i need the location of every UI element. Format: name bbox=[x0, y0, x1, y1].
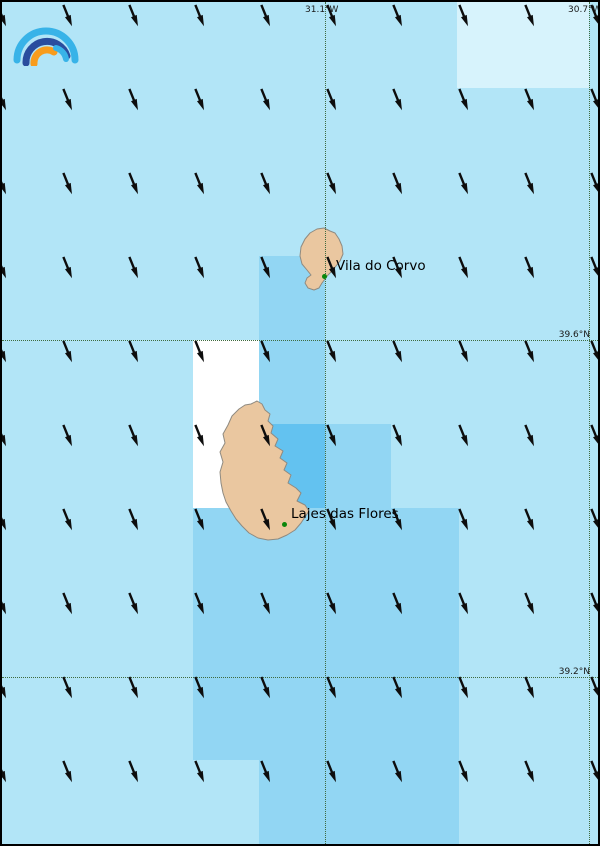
wind-arrow bbox=[127, 88, 141, 112]
graticule-label: 39.2°N bbox=[559, 667, 590, 677]
wind-arrow bbox=[193, 4, 207, 28]
wind-arrow bbox=[61, 340, 75, 364]
wind-arrow bbox=[193, 760, 207, 784]
wind-arrow bbox=[61, 676, 75, 700]
wind-arrow bbox=[127, 256, 141, 280]
wind-arrow bbox=[2, 676, 9, 700]
wind-arrow bbox=[589, 760, 600, 784]
wind-arrow bbox=[193, 256, 207, 280]
wind-arrow bbox=[259, 88, 273, 112]
wind-arrow bbox=[127, 424, 141, 448]
wind-arrow bbox=[127, 592, 141, 616]
wind-arrow bbox=[193, 172, 207, 196]
wind-arrow bbox=[523, 508, 537, 532]
wind-arrow bbox=[2, 760, 9, 784]
wind-arrow bbox=[523, 172, 537, 196]
wind-arrow bbox=[391, 4, 405, 28]
wind-arrow bbox=[2, 592, 9, 616]
graticule-label: 31.1°W bbox=[305, 5, 338, 15]
map-canvas[interactable]: Vila do CorvoLajes das Flores 31.1°W30.7… bbox=[0, 0, 600, 846]
rainbow-arcs-logo[interactable] bbox=[10, 14, 86, 66]
wind-arrow bbox=[61, 172, 75, 196]
wind-arrow bbox=[391, 172, 405, 196]
wind-arrow bbox=[589, 676, 600, 700]
wind-arrow bbox=[259, 4, 273, 28]
wind-arrow bbox=[2, 4, 9, 28]
wind-arrow bbox=[523, 256, 537, 280]
wind-arrow bbox=[127, 4, 141, 28]
wind-arrow bbox=[589, 592, 600, 616]
wind-arrow bbox=[391, 340, 405, 364]
wind-arrow bbox=[589, 88, 600, 112]
wind-arrow bbox=[523, 424, 537, 448]
graticule-line-horizontal bbox=[2, 340, 598, 341]
wind-arrow bbox=[523, 88, 537, 112]
wind-arrow bbox=[2, 340, 9, 364]
wind-arrow bbox=[457, 88, 471, 112]
wind-arrow bbox=[127, 760, 141, 784]
grid-cell bbox=[325, 424, 391, 508]
wind-arrow bbox=[2, 508, 9, 532]
wind-arrow bbox=[589, 172, 600, 196]
graticule-line-horizontal bbox=[2, 677, 598, 678]
city-label: Lajes das Flores bbox=[291, 507, 399, 522]
wind-arrow bbox=[2, 88, 9, 112]
city-label: Vila do Corvo bbox=[336, 259, 426, 274]
wind-arrow bbox=[325, 340, 339, 364]
graticule-label: 39.6°N bbox=[559, 330, 590, 340]
wind-arrow bbox=[589, 340, 600, 364]
grid-cell bbox=[193, 340, 259, 508]
wind-arrow bbox=[2, 256, 9, 280]
wind-arrow bbox=[259, 172, 273, 196]
wind-arrow bbox=[127, 172, 141, 196]
graticule-line-vertical bbox=[325, 2, 326, 844]
city-marker-dot bbox=[282, 522, 287, 527]
grid-cell bbox=[259, 424, 325, 508]
wind-arrow bbox=[391, 424, 405, 448]
wind-arrow bbox=[523, 676, 537, 700]
city-marker-dot bbox=[322, 274, 327, 279]
wind-arrow bbox=[457, 172, 471, 196]
wind-arrow bbox=[325, 172, 339, 196]
wind-arrow bbox=[61, 508, 75, 532]
wind-arrow bbox=[457, 340, 471, 364]
wind-arrow bbox=[589, 256, 600, 280]
graticule-line-vertical bbox=[589, 2, 590, 844]
wind-arrow bbox=[2, 424, 9, 448]
grid-cell bbox=[193, 508, 259, 760]
wind-arrow bbox=[589, 508, 600, 532]
wind-arrow bbox=[61, 424, 75, 448]
wind-arrow bbox=[457, 424, 471, 448]
wind-arrow bbox=[325, 88, 339, 112]
wind-arrow bbox=[61, 592, 75, 616]
wind-arrow bbox=[589, 424, 600, 448]
wind-arrow bbox=[523, 592, 537, 616]
wind-arrow bbox=[127, 340, 141, 364]
wind-arrow bbox=[2, 172, 9, 196]
wind-arrow bbox=[391, 88, 405, 112]
wind-arrow bbox=[61, 256, 75, 280]
wind-arrow bbox=[523, 760, 537, 784]
graticule-label: 30.7°W bbox=[568, 5, 600, 15]
wind-arrow bbox=[61, 760, 75, 784]
wind-arrow bbox=[193, 88, 207, 112]
wind-arrow bbox=[61, 88, 75, 112]
wind-arrow bbox=[523, 340, 537, 364]
wind-arrow bbox=[127, 508, 141, 532]
grid-cell bbox=[259, 508, 459, 844]
wind-arrow bbox=[457, 256, 471, 280]
wind-arrow bbox=[127, 676, 141, 700]
